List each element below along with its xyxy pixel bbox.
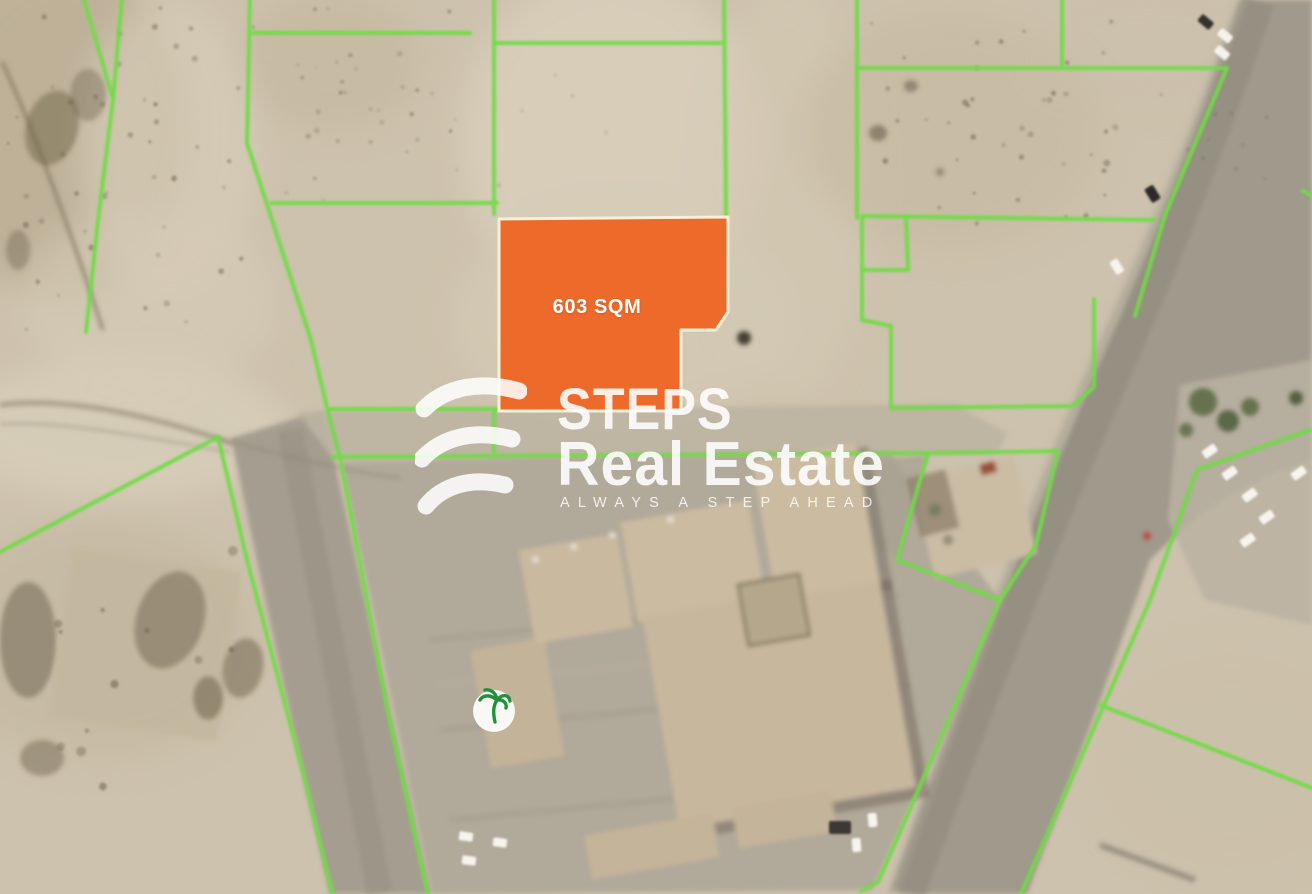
- satellite-basemap: [0, 0, 1312, 894]
- satellite-map-image: 603 SQM STEPS Real Estate ALWAYS A STEP …: [0, 0, 1312, 894]
- palm-tree-marker: [473, 690, 515, 732]
